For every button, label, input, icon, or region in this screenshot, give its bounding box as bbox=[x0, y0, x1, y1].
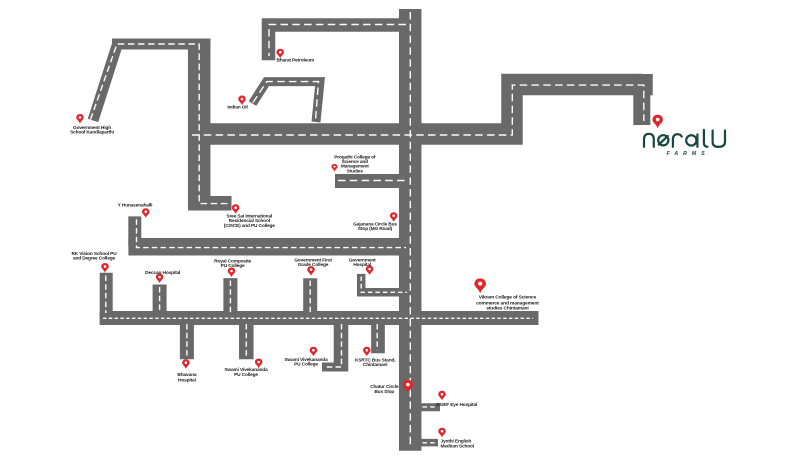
svg-text:Deccan Hospital: Deccan Hospital bbox=[145, 270, 180, 276]
svg-text:Hospital: Hospital bbox=[178, 377, 196, 383]
svg-text:Studies: Studies bbox=[347, 168, 364, 174]
svg-text:DGEF Eye Hospital: DGEF Eye Hospital bbox=[436, 402, 477, 408]
svg-text:Hospital: Hospital bbox=[353, 262, 371, 268]
svg-text:(CISCE) and PU College: (CISCE) and PU College bbox=[224, 223, 276, 229]
svg-text:Chintamani: Chintamani bbox=[363, 362, 388, 368]
svg-text:studies Chintamani: studies Chintamani bbox=[486, 305, 529, 311]
svg-text:Stop (MG Road): Stop (MG Road) bbox=[358, 226, 393, 232]
svg-text:commerce and management: commerce and management bbox=[476, 300, 539, 306]
svg-text:Bus Stop: Bus Stop bbox=[374, 389, 394, 395]
svg-text:Bharat Petroleum: Bharat Petroleum bbox=[277, 58, 315, 64]
svg-text:School Kandlaparthi: School Kandlaparthi bbox=[70, 129, 114, 135]
svg-text:Vikram College of Science: Vikram College of Science bbox=[479, 295, 537, 301]
svg-text:PU College: PU College bbox=[294, 361, 318, 367]
svg-text:PU College: PU College bbox=[234, 372, 258, 378]
svg-text:and Degree College: and Degree College bbox=[73, 256, 116, 262]
svg-text:Swami Vivekananda: Swami Vivekananda bbox=[224, 367, 268, 373]
svg-text:PU College: PU College bbox=[221, 263, 245, 269]
svg-text:Medium School: Medium School bbox=[441, 444, 475, 450]
svg-text:Grade College: Grade College bbox=[298, 262, 329, 268]
svg-text:Indian Oil: Indian Oil bbox=[227, 105, 247, 111]
svg-text:Y Hunasenahalli: Y Hunasenahalli bbox=[118, 202, 153, 208]
svg-text:Bhavana: Bhavana bbox=[177, 372, 196, 378]
svg-text:FARMS: FARMS bbox=[667, 151, 710, 157]
